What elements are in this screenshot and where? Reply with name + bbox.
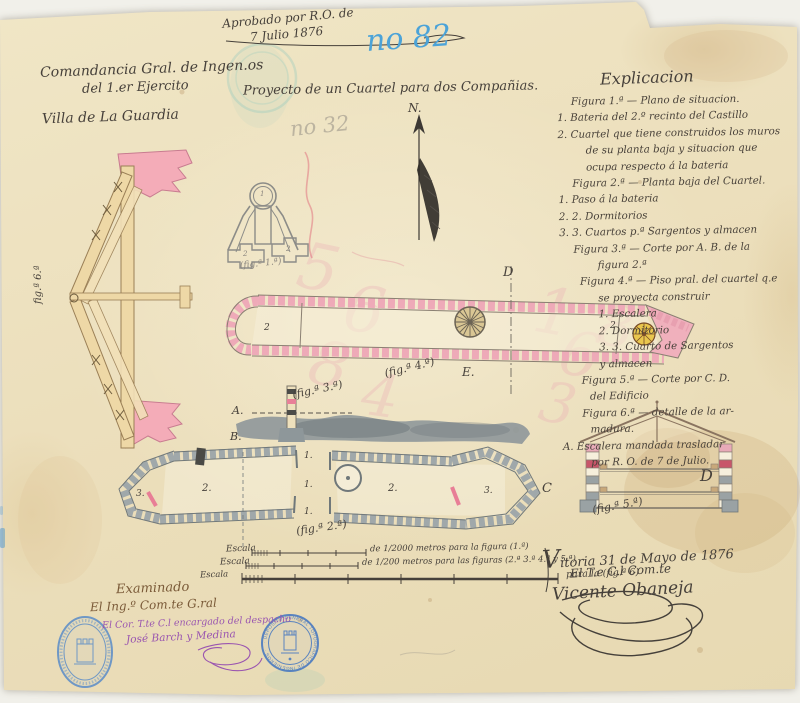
mark-e: E. <box>462 366 475 378</box>
mark-d: D <box>503 266 513 279</box>
mark-a: A. <box>232 405 243 416</box>
room-number: 1. <box>304 481 313 490</box>
room-number: 2. <box>388 484 398 494</box>
mark-b: B. <box>230 431 242 442</box>
room-number: 2 <box>264 324 270 333</box>
explanation-title: Explicacion <box>600 68 694 87</box>
mark-d2: D <box>700 468 713 484</box>
examined-heading: Examinado <box>116 581 190 597</box>
explanation-list: Figura 1.ª — Plano de situacion. 1. Bate… <box>555 90 800 472</box>
mark-c: C <box>542 482 552 495</box>
room-number: 1. <box>304 452 313 461</box>
scanned-plan-sheet: 5 6 8 4 1 6 8 3 <box>0 0 800 703</box>
room-number: 1 <box>260 191 264 198</box>
figure6-label: fig.ª 6.ª <box>34 266 44 304</box>
org-name-line2: del 1.er Ejercito <box>82 79 189 96</box>
room-number: 2 <box>286 246 290 253</box>
scale1-label: Escala <box>226 544 256 554</box>
document-number: no 82 <box>365 21 452 57</box>
room-number: 3. <box>136 490 145 499</box>
scale3-label: Escala <box>200 571 228 580</box>
room-number: 2 <box>610 322 616 331</box>
room-number: 3. <box>484 487 493 496</box>
scale2-label: Escala <box>220 557 250 567</box>
compass-north-label: N. <box>408 102 422 114</box>
room-number: 2. <box>202 484 212 494</box>
room-number: 1. <box>304 508 313 517</box>
room-number: 2 <box>243 251 247 258</box>
